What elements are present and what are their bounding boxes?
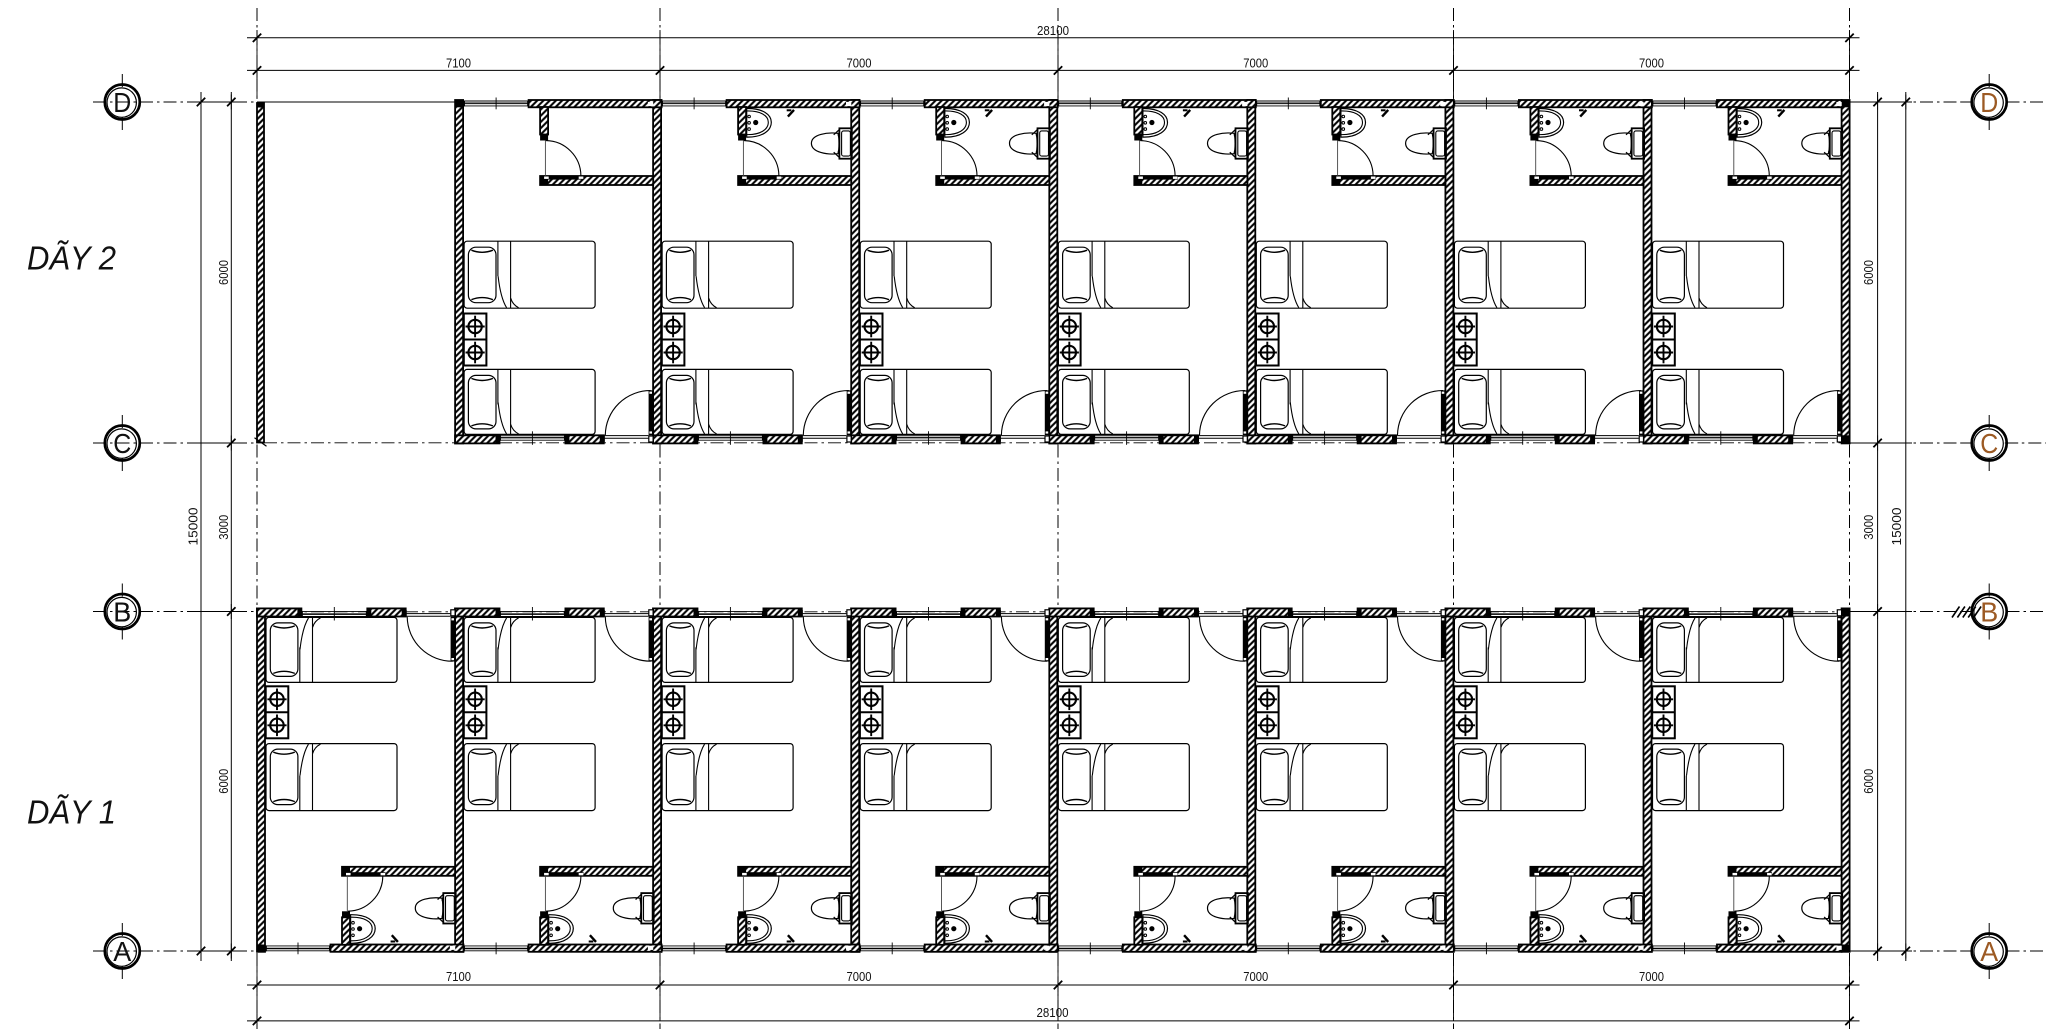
svg-text:7100: 7100 — [446, 970, 471, 984]
svg-text:28100: 28100 — [1037, 1006, 1069, 1020]
svg-text:B: B — [1980, 597, 1998, 628]
svg-text:3000: 3000 — [217, 515, 231, 540]
svg-text:DÃY 2: DÃY 2 — [27, 240, 116, 277]
svg-text:B: B — [113, 597, 131, 628]
svg-text:7000: 7000 — [1639, 970, 1664, 984]
svg-text:28100: 28100 — [1037, 24, 1069, 38]
svg-text:3000: 3000 — [1862, 515, 1876, 540]
svg-text:7000: 7000 — [1243, 57, 1268, 71]
svg-text:6000: 6000 — [217, 769, 231, 794]
svg-text:D: D — [1980, 87, 1998, 118]
svg-text:7100: 7100 — [446, 57, 471, 71]
svg-text:15000: 15000 — [1890, 507, 1904, 545]
svg-text:C: C — [1980, 428, 1998, 459]
svg-text:6000: 6000 — [1862, 769, 1876, 794]
svg-text:7000: 7000 — [1243, 970, 1268, 984]
svg-text:7000: 7000 — [847, 970, 872, 984]
svg-text:15000: 15000 — [187, 507, 201, 545]
svg-text:D: D — [113, 87, 131, 118]
svg-text:7000: 7000 — [1639, 57, 1664, 71]
svg-text:C: C — [113, 428, 131, 459]
svg-text:A: A — [113, 936, 131, 967]
svg-text:DÃY 1: DÃY 1 — [27, 794, 116, 831]
svg-text:A: A — [1980, 936, 1998, 967]
svg-text:6000: 6000 — [1862, 260, 1876, 285]
svg-text:6000: 6000 — [217, 260, 231, 285]
svg-text:7000: 7000 — [847, 57, 872, 71]
